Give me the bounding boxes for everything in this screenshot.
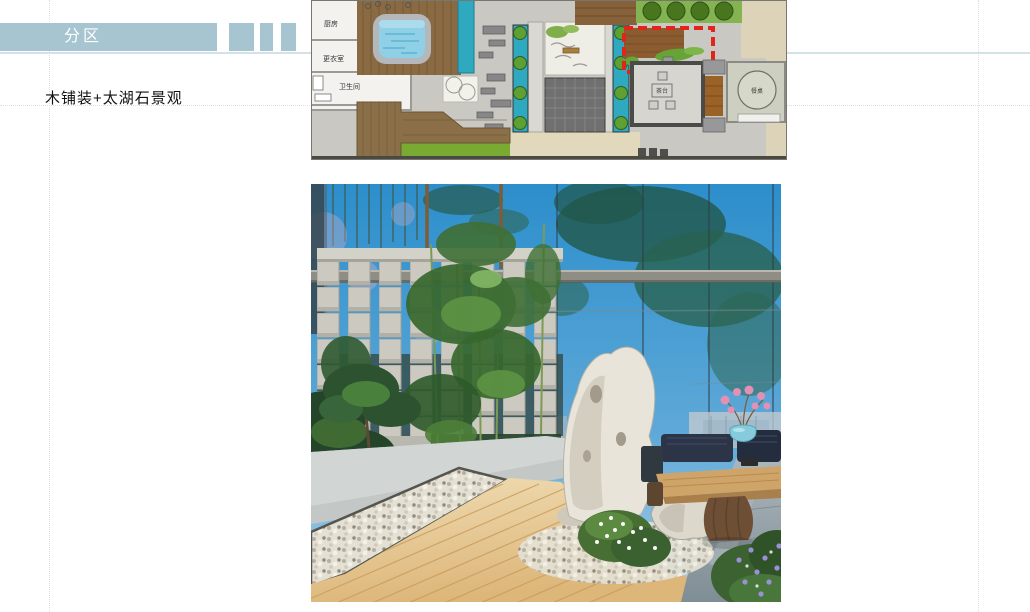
svg-text:厨房: 厨房: [324, 19, 338, 28]
plan-tea-court: 茶台: [632, 63, 703, 125]
deco-square: [260, 23, 273, 51]
garden-rendering-svg: [311, 184, 781, 602]
plan-stepping-stones: [443, 76, 478, 102]
floor-plan-image[interactable]: 厨房 更衣室 卫生间: [311, 0, 787, 160]
svg-text:茶台: 茶台: [656, 87, 668, 95]
plan-top-band: [575, 0, 742, 25]
svg-text:卫生间: 卫生间: [339, 82, 360, 91]
section-banner[interactable]: 分区: [0, 23, 217, 51]
plan-wood-strip: [703, 60, 725, 132]
floor-plan-svg: 厨房 更衣室 卫生间: [311, 0, 787, 160]
garden-rendering-image[interactable]: [311, 184, 781, 602]
svg-text:更衣室: 更衣室: [323, 54, 344, 63]
plan-water-strip: [458, 0, 474, 73]
caption-text[interactable]: 木铺装+太湖石景观: [45, 87, 183, 108]
guide-vertical-right: [978, 0, 979, 612]
slide: 分区 木铺装+太湖石景观 厨房 更衣室 卫生间: [0, 0, 1030, 612]
plan-dining-area: 餐桌: [727, 62, 785, 122]
plan-step-squares: [638, 148, 668, 157]
deco-square: [281, 23, 296, 51]
deco-square: [229, 23, 254, 51]
section-banner-label: 分区: [64, 23, 102, 51]
plan-deck-spa: [357, 0, 461, 75]
svg-text:餐桌: 餐桌: [751, 87, 763, 95]
